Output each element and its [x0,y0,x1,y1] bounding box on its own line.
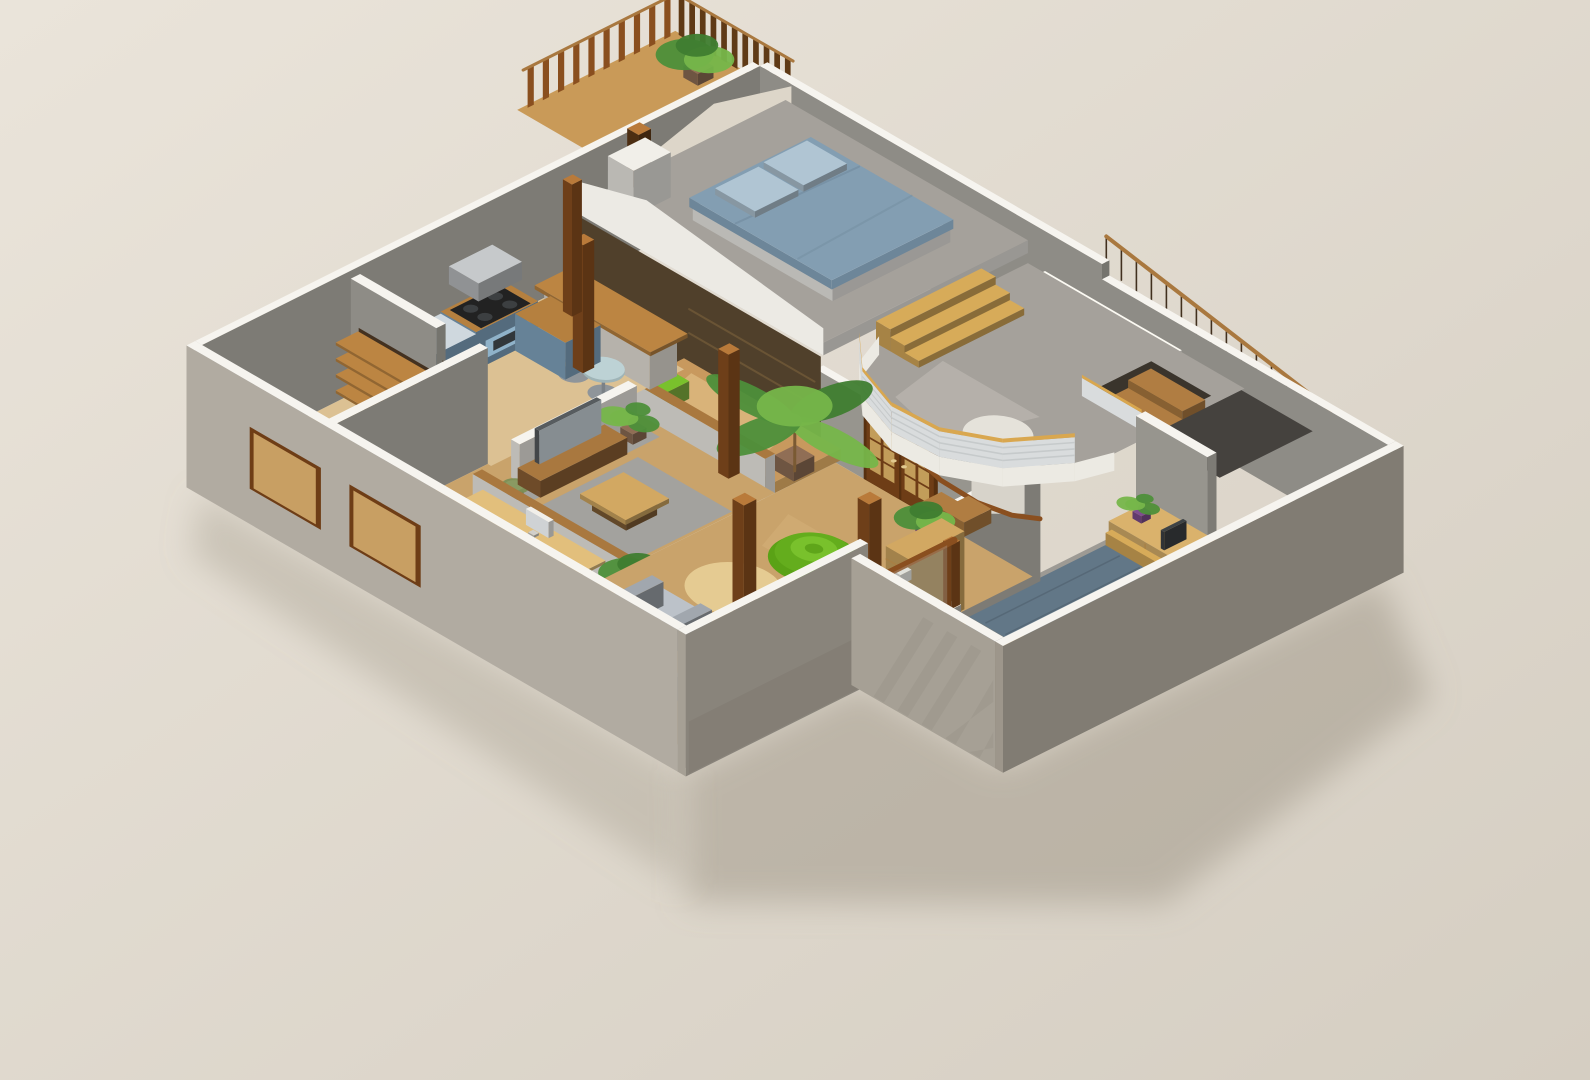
floorplan-render [0,0,1590,1080]
bar-post [563,174,582,316]
hall-post [718,343,740,479]
isometric-scene [0,0,1590,1080]
